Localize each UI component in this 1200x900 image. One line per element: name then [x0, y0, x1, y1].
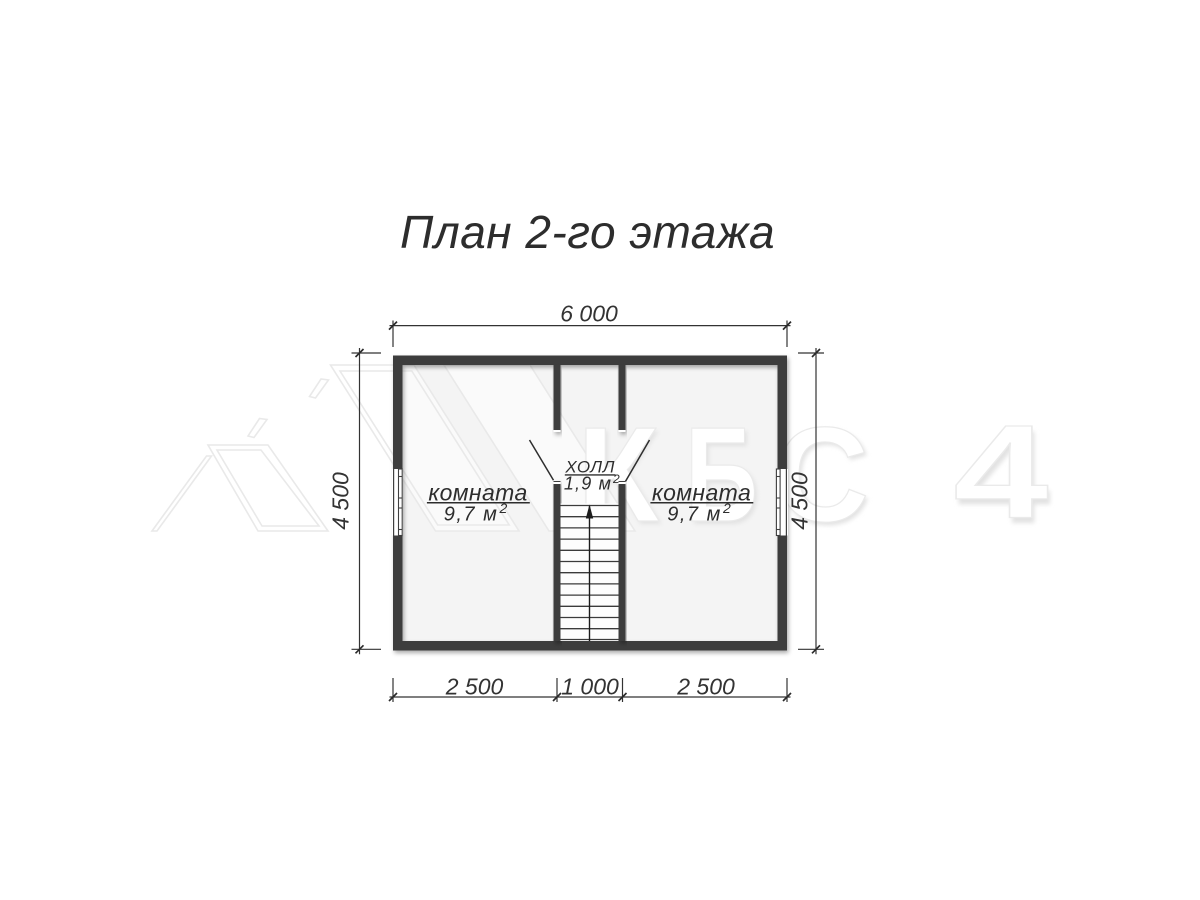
- svg-text:1 000: 1 000: [561, 674, 619, 700]
- svg-text:2: 2: [499, 500, 508, 516]
- svg-text:4: 4: [954, 399, 1049, 547]
- svg-text:4 500: 4 500: [787, 472, 813, 530]
- svg-text:9,7 м: 9,7 м: [444, 504, 499, 526]
- svg-text:2: 2: [722, 500, 731, 516]
- svg-text:2: 2: [612, 472, 620, 486]
- svg-text:комната: комната: [428, 480, 527, 506]
- svg-text:План 2-го этажа: План 2-го этажа: [400, 206, 775, 258]
- svg-text:2 500: 2 500: [676, 674, 735, 700]
- svg-text:9,7 м: 9,7 м: [667, 504, 722, 526]
- svg-text:Б: Б: [685, 399, 758, 550]
- svg-text:6 000: 6 000: [560, 301, 618, 327]
- svg-text:2 500: 2 500: [445, 674, 504, 700]
- svg-text:комната: комната: [652, 480, 751, 506]
- svg-text:4 500: 4 500: [328, 472, 354, 530]
- svg-text:1,9 м: 1,9 м: [564, 473, 612, 493]
